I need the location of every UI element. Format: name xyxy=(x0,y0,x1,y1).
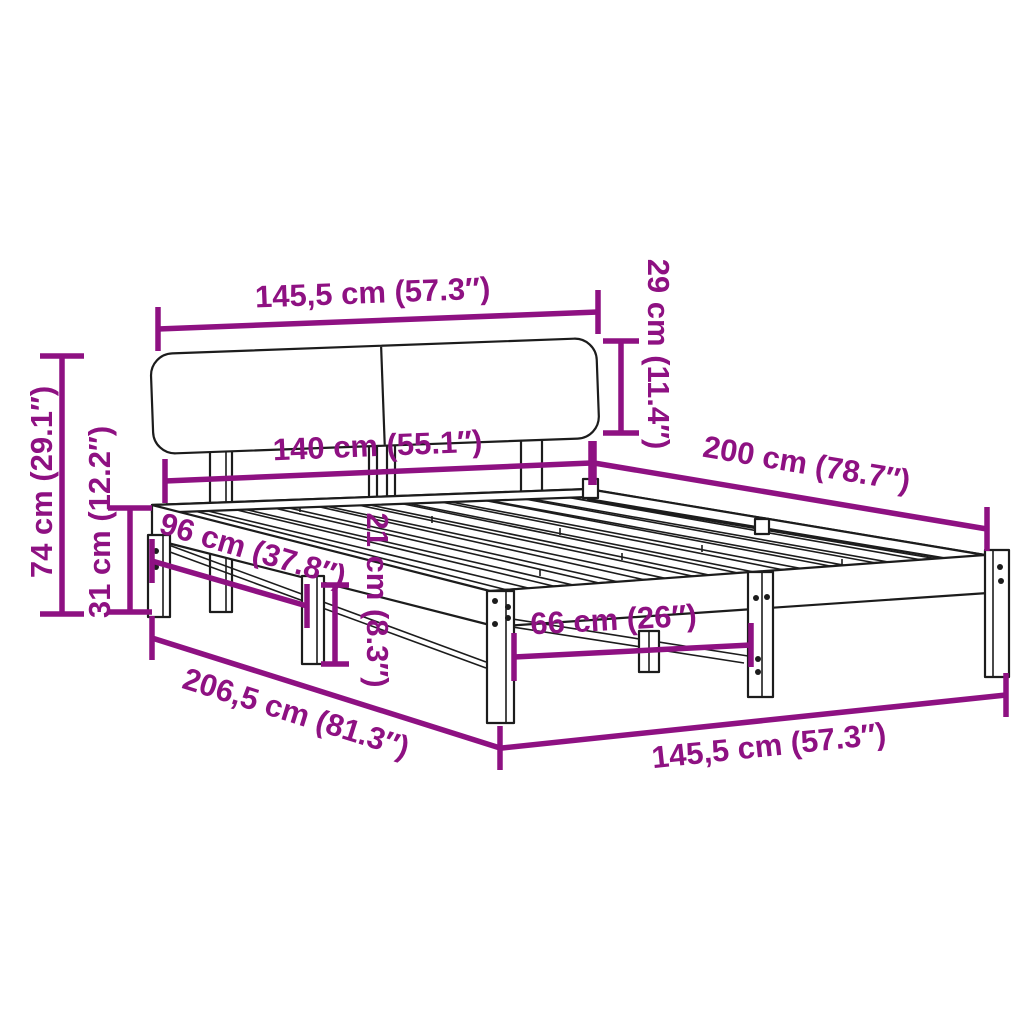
dim-headboard-width-label: 145,5 cm (57.3″) xyxy=(254,271,491,315)
dim-mattress-width-label: 140 cm (55.1″) xyxy=(272,424,483,468)
dim-total-height: 74 cm (29.1″) xyxy=(24,356,84,614)
leg-foot-left xyxy=(487,591,514,723)
diagram-canvas: 145,5 cm (57.3″) 29 cm (11.4″) 74 cm (29… xyxy=(0,0,1024,1024)
bed-frame-dimension-diagram: 145,5 cm (57.3″) 29 cm (11.4″) 74 cm (29… xyxy=(0,0,1024,1024)
dim-underbed-clearance-label: 21 cm (8.3″) xyxy=(360,512,395,687)
dim-total-height-label: 74 cm (29.1″) xyxy=(24,386,59,578)
bed-drawing xyxy=(148,338,1009,723)
dim-platform-height: 31 cm (12.2″) xyxy=(82,426,152,618)
dim-headboard-height: 29 cm (11.4″) xyxy=(603,259,676,450)
dim-total-length: 206,5 cm (81.3″) xyxy=(152,616,500,770)
dim-frame-width-label: 145,5 cm (57.3″) xyxy=(650,716,888,775)
dim-front-leg-spacing-label: 66 cm (26″) xyxy=(529,598,697,642)
leg-foot-right xyxy=(985,550,1009,677)
dim-headboard-height-label: 29 cm (11.4″) xyxy=(641,259,676,450)
dim-headboard-width: 145,5 cm (57.3″) xyxy=(158,271,598,351)
dim-platform-height-label: 31 cm (12.2″) xyxy=(82,426,117,618)
